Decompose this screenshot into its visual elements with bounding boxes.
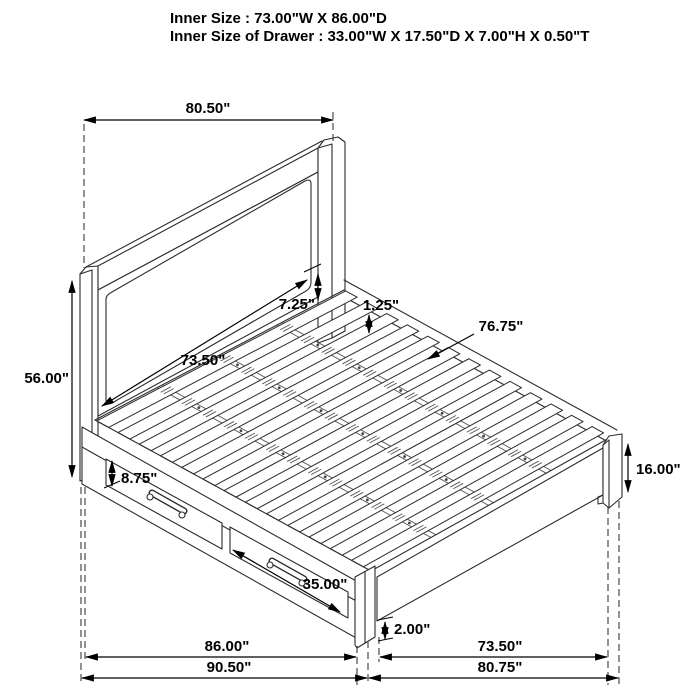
inner-size-title: Inner Size : 73.00"W X 86.00"D (170, 10, 387, 27)
svg-text:86.00": 86.00" (205, 638, 250, 655)
svg-text:2.00": 2.00" (394, 621, 430, 638)
svg-text:35.00": 35.00" (303, 576, 348, 593)
svg-text:73.50": 73.50" (181, 352, 226, 369)
svg-text:56.00": 56.00" (24, 370, 69, 387)
dim-headboard-width: 80.50" (84, 100, 333, 120)
dim-footboard-height: 16.00" (628, 444, 681, 492)
right-corner-post (603, 434, 622, 508)
svg-text:76.75": 76.75" (479, 318, 524, 335)
dim-foot-span: 73.50" (380, 638, 607, 657)
svg-text:80.50": 80.50" (186, 100, 231, 117)
svg-text:73.50": 73.50" (478, 638, 523, 655)
bed-dimension-diagram: Inner Size : 73.00"W X 86.00"D Inner Siz… (0, 0, 700, 700)
bed-dimension-diagram-page: Inner Size : 73.00"W X 86.00"D Inner Siz… (0, 0, 700, 700)
dim-storage-base-length: 86.00" (86, 638, 356, 657)
svg-text:8.75": 8.75" (121, 470, 157, 487)
svg-text:80.75": 80.75" (478, 659, 523, 676)
svg-text:7.25": 7.25" (279, 296, 315, 313)
dim-overall-width: 80.75" (369, 659, 618, 678)
dim-overall-length: 90.50" (82, 659, 367, 678)
svg-text:90.50": 90.50" (207, 659, 252, 676)
post-foot-detail (598, 495, 603, 504)
svg-text:1.25": 1.25" (363, 297, 399, 314)
dim-leg-height: 2.00" (378, 617, 430, 641)
inner-drawer-size-title: Inner Size of Drawer : 33.00"W X 17.50"D… (170, 28, 589, 45)
dim-headboard-height: 56.00" (24, 281, 72, 477)
svg-text:16.00": 16.00" (636, 461, 681, 478)
